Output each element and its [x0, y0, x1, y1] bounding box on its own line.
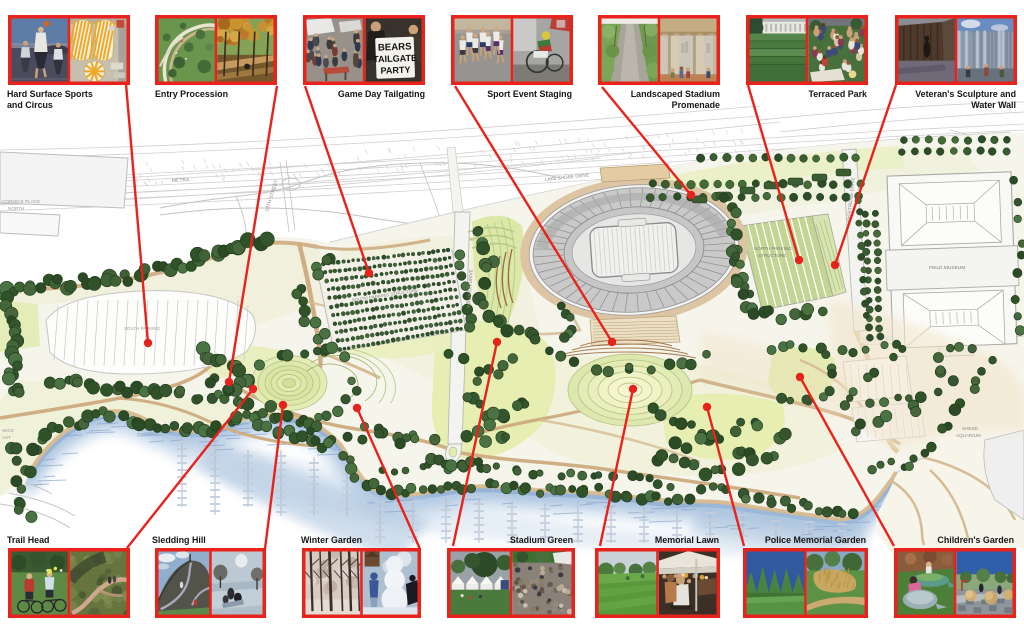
svg-text:Terraced Park: Terraced Park — [808, 89, 867, 99]
svg-text:Trail Head: Trail Head — [7, 535, 49, 545]
svg-text:FIELD MUSEUM: FIELD MUSEUM — [929, 265, 965, 271]
svg-text:Winter Garden: Winter Garden — [301, 535, 362, 545]
svg-text:NORTH PARKING: NORTH PARKING — [754, 246, 792, 251]
svg-text:Memorial Lawn: Memorial Lawn — [655, 535, 719, 545]
svg-text:PARTY: PARTY — [380, 65, 410, 76]
svg-text:Hard Surface Sports: Hard Surface Sports — [7, 89, 93, 99]
svg-text:METRA: METRA — [172, 177, 190, 184]
svg-text:Police Memorial Garden: Police Memorial Garden — [765, 535, 866, 545]
svg-text:Entry Procession: Entry Procession — [155, 89, 228, 99]
svg-text:NORTH: NORTH — [8, 206, 24, 211]
svg-text:Promenade: Promenade — [672, 100, 720, 110]
svg-text:AQUARIUM: AQUARIUM — [956, 433, 981, 438]
svg-text:Children's Garden: Children's Garden — [937, 535, 1014, 545]
svg-text:AST: AST — [2, 435, 11, 440]
svg-text:SHEDD: SHEDD — [962, 426, 979, 431]
svg-text:BEARS: BEARS — [378, 41, 413, 53]
svg-text:and Circus: and Circus — [7, 100, 53, 110]
svg-text:Veteran's Sculpture and: Veteran's Sculpture and — [915, 89, 1016, 99]
svg-text:CORMICK PLACE: CORMICK PLACE — [2, 199, 40, 204]
svg-text:Landscaped Stadium: Landscaped Stadium — [631, 89, 720, 99]
svg-text:Game Day Tailgating: Game Day Tailgating — [338, 89, 425, 99]
svg-text:TAILGATE: TAILGATE — [373, 53, 417, 65]
svg-text:SOUTH PARKING: SOUTH PARKING — [124, 326, 161, 331]
svg-text:Sledding Hill: Sledding Hill — [152, 535, 206, 545]
svg-text:Water Wall: Water Wall — [971, 100, 1016, 110]
svg-text:WICK: WICK — [2, 428, 15, 433]
svg-text:Stadium Green: Stadium Green — [510, 535, 573, 545]
svg-text:STRUCTURE: STRUCTURE — [758, 253, 786, 258]
svg-text:Sport Event Staging: Sport Event Staging — [487, 89, 572, 99]
